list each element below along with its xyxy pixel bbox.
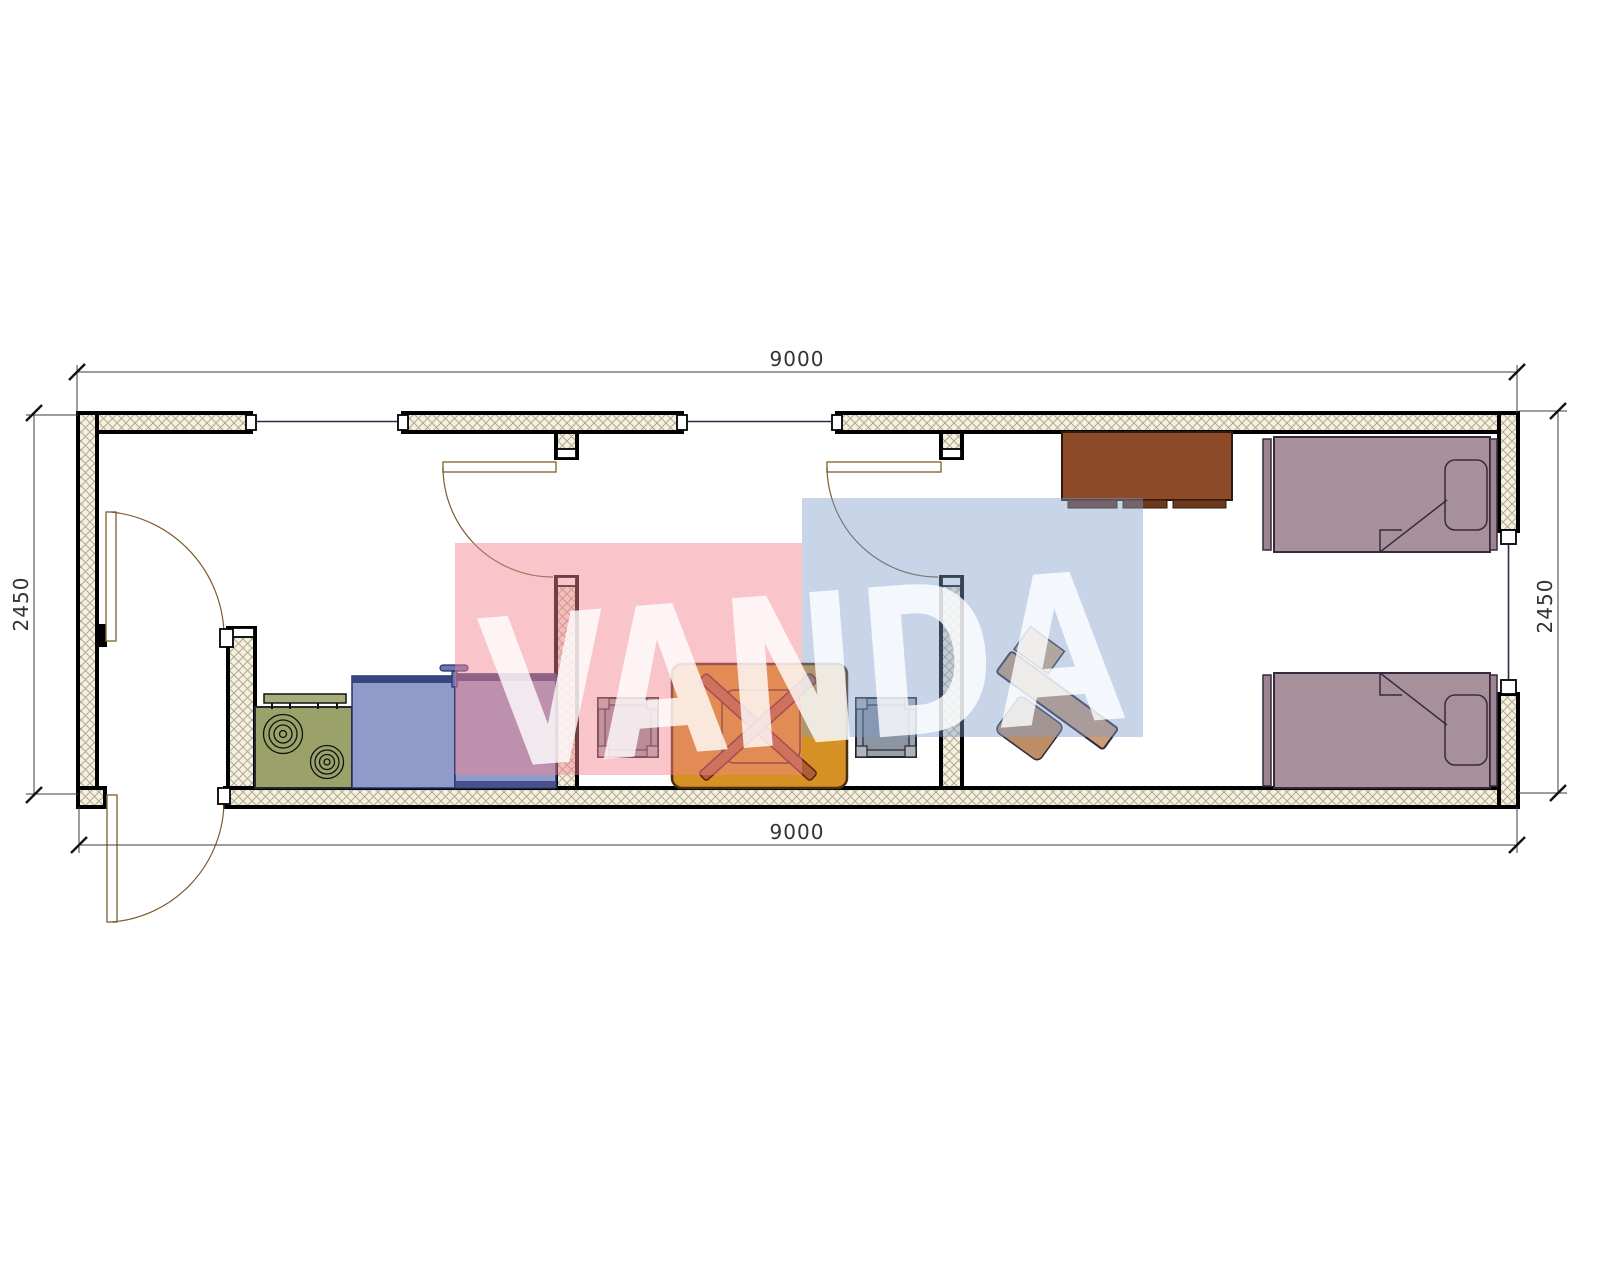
top-wall-mid: [403, 413, 682, 432]
left-wall: [78, 413, 97, 807]
dimension-label-top: 9000: [770, 347, 825, 371]
single-bed-icon: [1263, 437, 1497, 552]
pillow-icon: [1445, 460, 1487, 530]
top-wall-left: [78, 413, 251, 432]
watermark-text: VANDA: [473, 527, 1130, 816]
door-swing-icon: [107, 795, 224, 922]
bottom-wall-stub: [78, 788, 105, 807]
pillow-icon: [1445, 695, 1487, 765]
right-wall-upper: [1499, 413, 1518, 531]
counter-edge: [352, 676, 455, 683]
single-bed-icon: [1263, 673, 1497, 788]
dimension-label-bottom: 9000: [770, 820, 825, 844]
dimension-label-right: 2450: [1533, 579, 1557, 634]
strike-jamb: [220, 629, 233, 647]
floor-plan-canvas: 9000 9000 2450 2450 VANDA: [0, 0, 1600, 1280]
top-wall-right: [837, 413, 1518, 432]
right-wall-lower: [1499, 694, 1518, 807]
wardrobe-cabinet-icon: [1062, 432, 1232, 508]
bottom-wall-main: [225, 788, 1518, 807]
dimension-label-left: 2450: [9, 577, 33, 632]
door-swing-icon: [106, 512, 224, 641]
kitchen-wall: [228, 628, 255, 788]
strike-jamb: [218, 788, 230, 804]
kitchen-counter-icon: [352, 676, 455, 788]
floor-plan-page: 9000 9000 2450 2450 VANDA: [0, 0, 1600, 1280]
watermark: VANDA: [455, 498, 1143, 817]
